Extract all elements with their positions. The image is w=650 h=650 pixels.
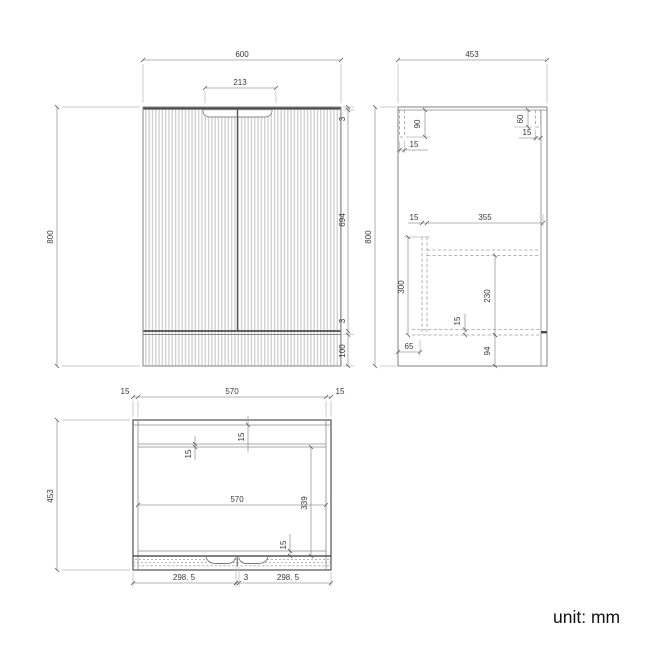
door-bottom-tick xyxy=(541,331,547,333)
sv-dim-bracket-right-thickness: 15 xyxy=(523,128,532,137)
pv-dim-side-left: 15 xyxy=(121,387,130,396)
fv-dim-bottom-gap: 3 xyxy=(338,318,347,323)
pv-dim-rail-thickness: 15 xyxy=(184,449,193,458)
drawing-canvas: 600 213 800 3 694 3 100 xyxy=(0,0,650,650)
sv-dim-drawer-zone: 300 xyxy=(397,280,406,294)
front-view: 600 213 800 3 694 3 100 xyxy=(46,50,354,366)
handle-recess-left xyxy=(206,557,236,564)
sv-dim-back-thickness: 15 xyxy=(410,213,419,222)
technical-drawing: 600 213 800 3 694 3 100 xyxy=(0,0,650,650)
front-view-body xyxy=(143,107,341,366)
pv-dim-side-right: 15 xyxy=(336,387,345,396)
sv-dim-height: 800 xyxy=(364,230,373,244)
sv-dim-bottom-zone: 94 xyxy=(483,346,492,355)
pv-dim-back-thickness: 15 xyxy=(237,432,246,441)
sv-dim-shelf-thickness: 15 xyxy=(453,316,462,325)
fv-dim-plinth-height: 100 xyxy=(338,344,347,358)
fv-dim-handle-width: 213 xyxy=(233,78,247,87)
sv-dim-internal-depth: 355 xyxy=(478,213,492,222)
sv-dim-bracket-right-length: 60 xyxy=(516,114,525,123)
pv-dim-door-depth: 339 xyxy=(300,496,309,510)
fv-dim-height: 800 xyxy=(46,230,55,244)
pv-dim-center-gap: 3 xyxy=(244,573,249,582)
fv-dim-door-height: 694 xyxy=(338,213,347,227)
pv-dim-width-top: 570 xyxy=(225,387,239,396)
pv-dim-internal-width: 570 xyxy=(230,495,244,504)
fv-dim-top-gap: 3 xyxy=(338,116,347,121)
pv-dim-door-left: 298. 5 xyxy=(173,573,196,582)
plan-view: 15 570 15 453 15 15 570 339 15 298. 5 3 … xyxy=(46,387,345,587)
fv-dim-width: 600 xyxy=(235,50,249,59)
pv-dim-door-right: 298. 5 xyxy=(277,573,300,582)
sv-dim-back-clearance: 65 xyxy=(405,342,414,351)
pv-dim-depth: 453 xyxy=(46,489,55,503)
side-view: 453 800 90 15 60 15 15 355 300 230 15 65… xyxy=(364,50,547,366)
pv-dim-front-thickness: 15 xyxy=(279,540,288,549)
sv-dim-bracket-left-length: 90 xyxy=(413,119,422,128)
handle-recess-right xyxy=(239,557,268,564)
sv-dim-bracket-left-thickness: 15 xyxy=(410,140,419,149)
sv-dim-depth: 453 xyxy=(465,50,479,59)
side-view-body xyxy=(398,107,547,366)
sv-dim-shelf-space: 230 xyxy=(483,289,492,303)
unit-label: unit: mm xyxy=(553,607,620,627)
